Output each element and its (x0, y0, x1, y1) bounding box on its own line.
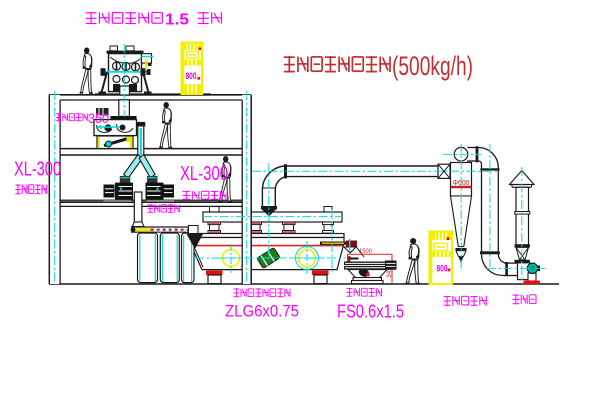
svg-text:XL-300: XL-300 (180, 163, 228, 185)
svg-text:(500kg/h): (500kg/h) (392, 51, 473, 81)
svg-text:ZLG6x0.75: ZLG6x0.75 (225, 302, 299, 321)
svg-text:1500: 1500 (359, 248, 372, 255)
svg-text:800: 800 (437, 264, 448, 275)
svg-text:350: 350 (88, 110, 109, 126)
svg-text:1.5: 1.5 (165, 12, 189, 29)
svg-text:XL-300: XL-300 (14, 159, 61, 181)
svg-text:FS0.6x1.5: FS0.6x1.5 (337, 302, 404, 322)
svg-text:800: 800 (186, 71, 197, 82)
